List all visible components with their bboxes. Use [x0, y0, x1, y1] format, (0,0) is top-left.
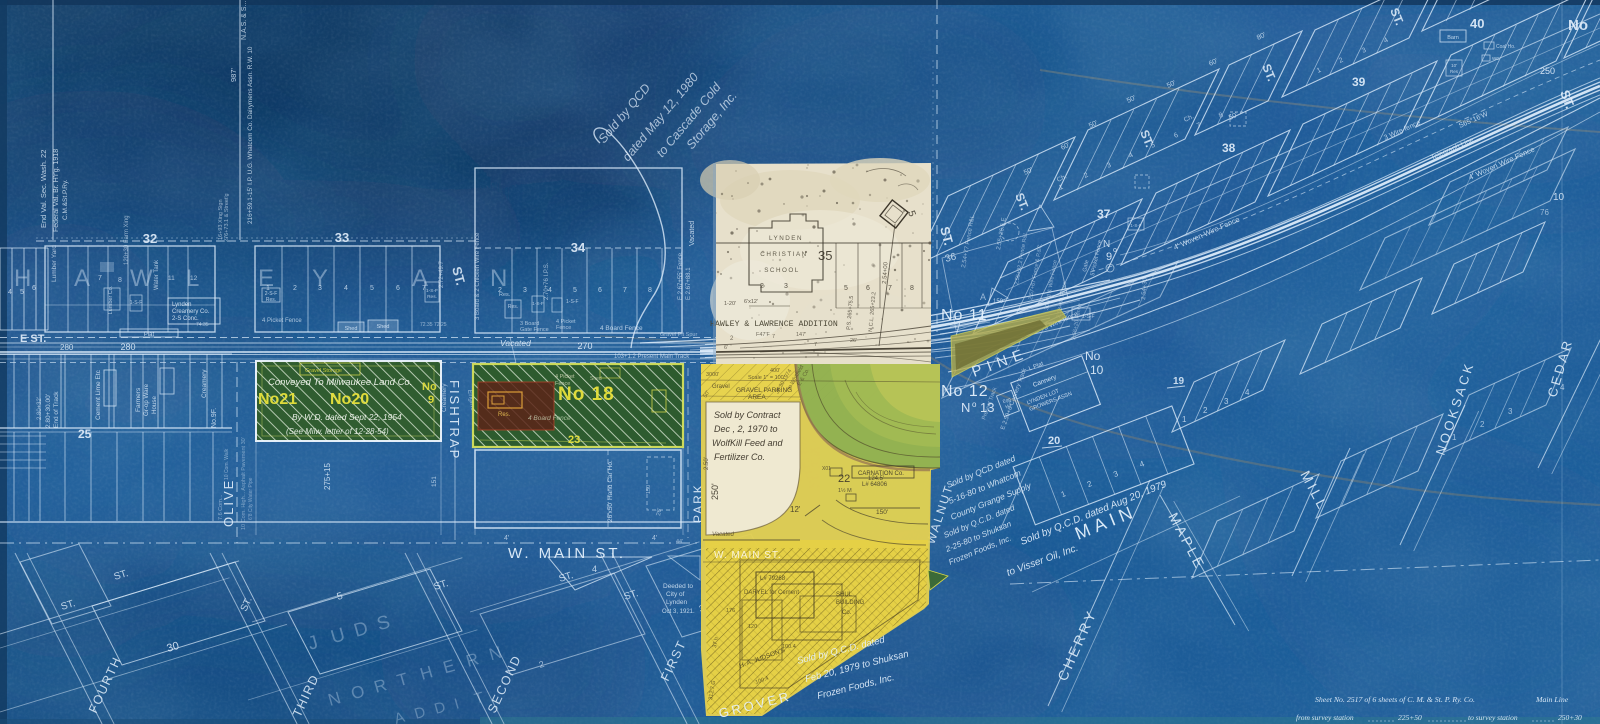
svg-text:LYNDEN: LYNDEN	[769, 235, 803, 242]
svg-text:5: 5	[370, 285, 374, 292]
svg-text:Coal Ho.: Coal Ho.	[1496, 44, 1515, 50]
svg-text:7.6 Com...: 7.6 Com...	[218, 494, 224, 520]
svg-text:L# 64806: L# 64806	[862, 482, 888, 488]
svg-text:No 11: No 11	[941, 307, 988, 324]
svg-text:22: 22	[838, 473, 850, 485]
svg-text:13: 13	[980, 400, 994, 415]
svg-text:HAWLEY & LAWRENCE ADDITION: HAWLEY & LAWRENCE ADDITION	[710, 320, 838, 329]
svg-text:Lynden: Lynden	[172, 302, 191, 308]
svg-text:2-S Conc.: 2-S Conc.	[172, 316, 199, 322]
svg-text:Deeded to: Deeded to	[663, 583, 693, 590]
svg-text:6: 6	[598, 287, 602, 294]
svg-text:35: 35	[818, 248, 832, 263]
svg-text:5: 5	[844, 285, 848, 292]
svg-text:No: No	[1085, 349, 1101, 363]
svg-text:Water Tank: Water Tank	[154, 259, 160, 290]
svg-text:from survey station: from survey station	[1296, 713, 1354, 722]
svg-text:End Val. Sec. Wash. 22: End Val. Sec. Wash. 22	[39, 150, 48, 228]
svg-text:A: A	[74, 265, 90, 292]
svg-text:1: 1	[1452, 433, 1457, 442]
svg-text:33: 33	[335, 230, 349, 245]
svg-text:City of: City of	[666, 591, 685, 598]
svg-text:F47'F: F47'F	[756, 332, 771, 338]
svg-text:CARNATION Co.: CARNATION Co.	[858, 471, 904, 477]
svg-text:Shed: Shed	[590, 376, 602, 382]
svg-text:72.25: 72.25	[434, 322, 447, 328]
svg-text:Lynden: Lynden	[666, 599, 687, 606]
svg-text:3: 3	[784, 283, 788, 290]
svg-text:6'x12': 6'x12'	[744, 299, 758, 305]
svg-text:7: 7	[772, 334, 775, 340]
svg-text:Plat: Plat	[144, 332, 155, 338]
svg-text:280: 280	[120, 342, 135, 352]
svg-text:1-S-F: 1-S-F	[566, 299, 579, 305]
svg-text:2.70+76 I.P.S.: 2.70+76 I.P.S.	[544, 262, 550, 300]
svg-text:10: 10	[1553, 192, 1565, 203]
svg-text:Vacated: Vacated	[500, 338, 531, 348]
svg-text:Sheet No. 2517 of 6 sheet: Sheet No. 2517 of 6 sheets of C. M. & St…	[1315, 695, 1475, 704]
svg-text:4 Picket: 4 Picket	[555, 374, 575, 380]
svg-text:Oct 3, 1921.: Oct 3, 1921.	[662, 609, 695, 615]
svg-text:No21: No21	[258, 391, 297, 408]
svg-text:6: 6	[866, 285, 870, 292]
svg-text:N: N	[961, 400, 970, 415]
svg-text:280: 280	[60, 343, 74, 352]
svg-text:Creamery: Creamery	[441, 383, 448, 412]
svg-text:C.M.&St.P.Ry.: C.M.&St.P.Ry.	[62, 179, 69, 220]
svg-text:4: 4	[592, 564, 597, 574]
svg-text:34: 34	[571, 240, 586, 255]
svg-text:Gr-op Ware: Gr-op Ware	[143, 383, 150, 416]
svg-text:W. MAIN ST.: W. MAIN ST.	[508, 545, 626, 562]
svg-text:CHRISTIAN: CHRISTIAN	[760, 251, 807, 258]
svg-text:9: 9	[428, 394, 434, 406]
svg-text:3: 3	[1508, 407, 1513, 416]
svg-text:By W.D. dated Sept 22, 1954: By W.D. dated Sept 22, 1954	[292, 412, 402, 422]
svg-text:Conveyed To Milwaukee Land Co.: Conveyed To Milwaukee Land Co.	[268, 377, 412, 388]
svg-text:E ST.: E ST.	[20, 333, 46, 345]
svg-text:72.35: 72.35	[420, 322, 433, 328]
svg-text:A: A	[980, 292, 986, 302]
svg-text:Creamery: Creamery	[201, 369, 208, 398]
svg-text:6'8 City Water Pipe: 6'8 City Water Pipe	[248, 477, 254, 520]
svg-text:FISHTRAP: FISHTRAP	[447, 380, 462, 460]
svg-text:1-S-F: 1-S-F	[1130, 223, 1142, 228]
svg-text:40: 40	[1470, 16, 1484, 31]
svg-text:3: 3	[523, 287, 527, 294]
svg-text:1-S-F: 1-S-F	[426, 288, 438, 294]
svg-text:2.80+30.00': 2.80+30.00'	[45, 394, 52, 428]
svg-text:44': 44'	[676, 539, 683, 545]
svg-text:Shed: Shed	[377, 324, 390, 330]
svg-text:9: 9	[1106, 251, 1112, 263]
svg-text:2.50': 2.50'	[704, 457, 710, 470]
svg-text:3: 3	[1224, 397, 1229, 406]
svg-text:SHUL: SHUL	[836, 592, 853, 598]
svg-text:Gravel Pit Spur: Gravel Pit Spur	[660, 332, 697, 338]
svg-text:216+59.1-15' I.P. U.G. Whatcom: 216+59.1-15' I.P. U.G. Whatcom Co. Dairy…	[247, 46, 254, 224]
svg-text:5: 5	[573, 287, 577, 294]
svg-text:10': 10'	[1451, 63, 1457, 68]
svg-text:6: 6	[32, 285, 36, 292]
svg-text:225+50: 225+50	[1398, 713, 1422, 722]
svg-text:11: 11	[168, 275, 175, 282]
svg-text:W: W	[130, 265, 153, 292]
svg-text:4: 4	[8, 289, 12, 296]
svg-text:Res: Res	[1450, 69, 1459, 74]
svg-text:Co.: Co.	[842, 610, 852, 616]
svg-text:2: 2	[1480, 420, 1485, 429]
svg-text:25: 25	[78, 427, 92, 441]
svg-text:7: 7	[814, 342, 817, 348]
svg-text:176: 176	[726, 608, 735, 614]
svg-text:150: 150	[646, 485, 652, 494]
svg-text:Cement Lime Etc: Cement Lime Etc	[95, 369, 102, 420]
svg-text:WC: WC	[1492, 56, 1500, 61]
svg-text:37: 37	[1097, 207, 1111, 221]
svg-text:WolfKill Feed and: WolfKill Feed and	[712, 438, 784, 448]
svg-text:End of Track: End of Track	[53, 391, 60, 428]
svg-text:1-S-F: 1-S-F	[130, 300, 143, 306]
svg-text:Lumber Co.: Lumber Co.	[108, 285, 114, 314]
svg-text:7: 7	[888, 285, 892, 292]
svg-text:151: 151	[431, 476, 438, 487]
svg-text:1-S-F: 1-S-F	[532, 301, 544, 306]
svg-text:No: No	[422, 381, 437, 393]
svg-text:8: 8	[648, 287, 652, 294]
svg-text:2: 2	[760, 283, 764, 290]
svg-text:BUILDING: BUILDING	[836, 600, 865, 606]
svg-text:147': 147'	[796, 332, 806, 338]
svg-text:W. MAIN ST.: W. MAIN ST.	[714, 550, 782, 561]
svg-text:Vacated: Vacated	[712, 532, 734, 538]
svg-text:3: 3	[318, 285, 322, 292]
svg-text:3000': 3000'	[706, 372, 719, 378]
svg-text:SCHOOL: SCHOOL	[764, 267, 800, 274]
svg-text:Res.: Res.	[427, 294, 437, 300]
svg-text:12': 12'	[790, 505, 801, 514]
svg-text:Sold by Contract: Sold by Contract	[714, 410, 781, 420]
svg-text:4 Picket Fence: 4 Picket Fence	[262, 318, 302, 324]
svg-text:8: 8	[118, 277, 122, 284]
svg-text:Farmers: Farmers	[135, 387, 142, 412]
svg-text:Res.: Res.	[499, 292, 511, 298]
svg-text:X01: X01	[822, 466, 831, 472]
svg-text:26': 26'	[850, 338, 857, 344]
svg-text:276+73.1 & Street'g: 276+73.1 & Street'g	[224, 193, 230, 242]
svg-text:Lumber Yard: Lumber Yard	[51, 245, 58, 282]
svg-text:3 Board & 2 Chicken Wire Fence: 3 Board & 2 Chicken Wire Fence	[475, 232, 481, 320]
svg-text:270: 270	[577, 341, 592, 351]
svg-text:AREA: AREA	[748, 394, 766, 401]
svg-text:26'x50' Hand Car Ho.: 26'x50' Hand Car Ho.	[607, 460, 614, 522]
svg-text:1: 1	[1182, 415, 1187, 424]
svg-text:o: o	[972, 400, 977, 409]
svg-text:GRAVEL PARKING: GRAVEL PARKING	[736, 387, 792, 394]
svg-text:Gravel: Gravel	[712, 384, 730, 390]
svg-text:Gravel Storage: Gravel Storage	[305, 368, 342, 374]
svg-text:DARYEL for Cement: DARYEL for Cement	[744, 590, 799, 596]
svg-text:Dec , 2, 1970 to: Dec , 2, 1970 to	[714, 424, 778, 434]
svg-text:8: 8	[910, 285, 914, 292]
svg-text:o: o	[1113, 247, 1117, 254]
svg-text:20: 20	[1048, 435, 1060, 447]
svg-text:1½ M: 1½ M	[838, 487, 852, 494]
svg-text:23: 23	[568, 434, 580, 446]
svg-text:Res.: Res.	[266, 297, 276, 303]
svg-text:L# 79268: L# 79268	[760, 576, 786, 582]
svg-text:to survey station: to survey station	[1468, 713, 1518, 722]
svg-text:10: 10	[1090, 363, 1104, 377]
svg-text:103+1.2 Present Main Track: 103+1.2 Present Main Track	[614, 354, 690, 360]
svg-text:275+15: 275+15	[323, 463, 332, 490]
svg-text:150': 150'	[876, 509, 888, 516]
svg-text:2.80+32': 2.80+32'	[37, 397, 43, 420]
svg-text:N.A.S. & S...: N.A.S. & S...	[241, 1, 248, 40]
svg-text:250': 250'	[710, 483, 720, 500]
svg-text:4': 4'	[504, 535, 509, 542]
svg-text:4: 4	[1245, 388, 1250, 397]
svg-text:Main Line: Main Line	[1535, 695, 1569, 704]
svg-text:No 12: No 12	[941, 383, 989, 400]
svg-text:32: 32	[143, 231, 157, 246]
svg-text:120+30 Farm Xing: 120+30 Farm Xing	[124, 215, 130, 265]
svg-text:4 Board Fence: 4 Board Fence	[528, 415, 571, 422]
svg-text:76: 76	[1540, 208, 1549, 217]
svg-text:Res.: Res.	[508, 304, 518, 310]
svg-text:E 2.67+88.1: E 2.67+88.1	[686, 267, 692, 300]
svg-text:74.35: 74.35	[196, 322, 209, 328]
svg-text:6': 6'	[724, 345, 728, 351]
svg-text:120: 120	[748, 624, 757, 630]
svg-text:7: 7	[98, 275, 102, 282]
svg-text:2: 2	[293, 285, 297, 292]
svg-text:Creamery Co.: Creamery Co.	[172, 309, 210, 315]
svg-text:No 18: No 18	[558, 384, 615, 405]
svg-text:Barn: Barn	[1447, 35, 1459, 41]
svg-text:Res.: Res.	[498, 412, 511, 418]
svg-text:Gate Fence: Gate Fence	[520, 327, 549, 333]
svg-text:No: No	[1568, 17, 1588, 34]
svg-text:38: 38	[1222, 141, 1236, 155]
svg-text:19: 19	[1173, 376, 1185, 387]
svg-text:4: 4	[344, 285, 348, 292]
svg-text:No20: No20	[330, 391, 369, 408]
svg-text:N: N	[1103, 239, 1110, 250]
svg-text:2.72+49.7: 2.72+49.7	[439, 260, 445, 288]
svg-text:7: 7	[623, 287, 627, 294]
svg-text:400': 400'	[770, 368, 780, 374]
svg-text:1-20': 1-20'	[724, 301, 736, 307]
svg-text:Federal Val. Br. H'r'g. 1918: Federal Val. Br. H'r'g. 1918	[53, 149, 60, 232]
svg-text:Fence: Fence	[556, 325, 571, 331]
svg-text:House: House	[151, 396, 158, 414]
svg-text:4': 4'	[652, 535, 657, 542]
svg-text:10 Com. Walk: 10 Com. Walk	[224, 448, 230, 480]
svg-text:(See Milw. letter of 12-28: (See Milw. letter of 12-28-54)	[286, 427, 389, 436]
svg-text:Fence: Fence	[555, 381, 570, 387]
svg-text:Shed: Shed	[345, 326, 358, 332]
svg-text:L: L	[186, 265, 199, 292]
svg-text:No.9F.: No.9F.	[211, 408, 218, 428]
svg-text:2: 2	[1203, 406, 1208, 415]
svg-text:39: 39	[1352, 75, 1366, 89]
svg-text:Vacated: Vacated	[689, 221, 696, 246]
svg-text:10 Com. High... Asphalt Paveme: 10 Com. High... Asphalt Pavement 30'	[241, 437, 247, 530]
svg-text:E 2.67+55' Fence.: E 2.67+55' Fence.	[678, 251, 684, 300]
svg-text:Fertilizer Co.: Fertilizer Co.	[714, 452, 765, 462]
svg-text:6: 6	[396, 285, 400, 292]
svg-text:H: H	[14, 265, 31, 292]
svg-text:987': 987'	[229, 67, 238, 82]
